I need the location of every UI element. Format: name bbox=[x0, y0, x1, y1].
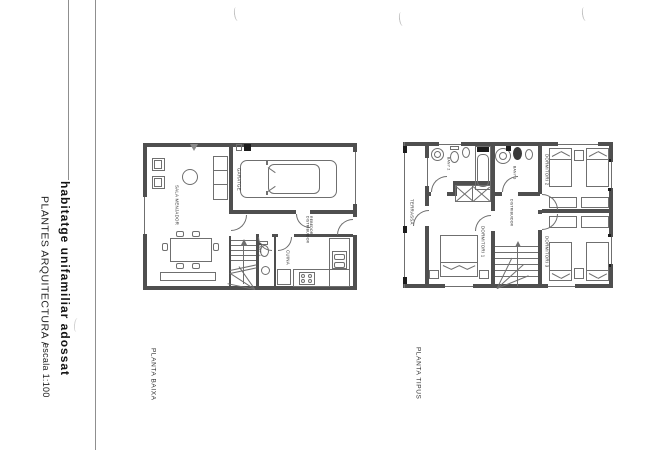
railing-post bbox=[403, 146, 407, 153]
window bbox=[144, 197, 145, 234]
bidet-icon bbox=[462, 147, 470, 158]
stair-arrow-head bbox=[241, 239, 247, 245]
meter-box-dark bbox=[244, 144, 251, 151]
scan-mark bbox=[73, 318, 80, 333]
meter-box bbox=[236, 144, 242, 151]
railing-post bbox=[403, 226, 407, 233]
wall bbox=[353, 235, 357, 290]
room-label-rebedor: REBEDOR DISTRIBUIDOR bbox=[305, 216, 312, 243]
distribuidor-line: DISTRIBUIDOR bbox=[305, 216, 308, 243]
window bbox=[439, 144, 461, 145]
railing-post bbox=[403, 277, 407, 284]
bed-pillow-line bbox=[587, 159, 608, 160]
room-label-garatge: GARATGE bbox=[236, 168, 240, 191]
terrace-railing bbox=[404, 142, 405, 288]
nightstand-icon bbox=[479, 270, 489, 279]
door-arc bbox=[278, 237, 292, 251]
wall bbox=[538, 230, 542, 288]
stair-arrow bbox=[517, 245, 518, 286]
door-arc bbox=[337, 219, 353, 235]
garage-door bbox=[355, 152, 356, 204]
chair-icon bbox=[213, 243, 219, 251]
wall bbox=[229, 210, 296, 214]
wall bbox=[353, 204, 357, 217]
plan-caption-ground: PLANTA BAIXA bbox=[149, 348, 156, 401]
room-label-dorm3: DORMITORI 3 bbox=[544, 236, 548, 267]
nightstand-icon bbox=[429, 270, 439, 279]
scan-mark bbox=[398, 12, 406, 27]
sink-icon bbox=[261, 266, 270, 275]
desk-icon bbox=[549, 197, 577, 208]
plan-caption-upper: PLANTA TIPUS bbox=[414, 347, 421, 399]
sheet-name: PLANTES ARQUITECTURA / bbox=[39, 196, 50, 345]
wall bbox=[425, 142, 429, 158]
title-rule-long bbox=[95, 0, 96, 450]
window bbox=[611, 162, 612, 188]
armchair-cushion bbox=[154, 160, 162, 169]
single-bed-icon bbox=[549, 242, 572, 281]
sink-basin bbox=[334, 262, 345, 268]
bed-pillow-line bbox=[550, 270, 571, 271]
room-label-distribuidor: DISTRIBUIDOR bbox=[509, 199, 512, 226]
project-title: habitatge unifamiliar adossat bbox=[59, 181, 71, 376]
burner bbox=[308, 274, 312, 278]
desk-icon bbox=[581, 197, 609, 208]
wall bbox=[427, 192, 431, 196]
bed-pillow-line bbox=[587, 270, 608, 271]
wall bbox=[274, 234, 276, 290]
nightstand-icon bbox=[574, 150, 584, 161]
room-label-dorm2: DORMITORI 2 bbox=[544, 154, 548, 185]
room-label-bany2: BANY 2 bbox=[446, 157, 449, 171]
sink-basin bbox=[334, 254, 345, 260]
sofa-cushion-line bbox=[214, 184, 227, 185]
toilet-tank bbox=[450, 146, 459, 150]
chair-icon bbox=[162, 243, 168, 251]
bathtub-faucet bbox=[477, 147, 489, 152]
scan-mark bbox=[233, 7, 241, 22]
wall bbox=[491, 142, 495, 211]
basin-inner bbox=[434, 151, 441, 158]
car-mirror bbox=[266, 161, 268, 165]
wall bbox=[495, 192, 502, 196]
burner bbox=[301, 279, 305, 283]
wall bbox=[310, 210, 353, 214]
sofa-icon bbox=[213, 156, 228, 200]
room-label-sala: SALA MENJADOR bbox=[174, 185, 178, 225]
chair-icon bbox=[176, 231, 184, 237]
desk-icon bbox=[549, 216, 577, 228]
fridge-icon bbox=[277, 269, 291, 285]
window-jamb bbox=[608, 234, 611, 237]
bed-pillow-line bbox=[441, 262, 477, 263]
chair-icon bbox=[192, 263, 200, 269]
window bbox=[445, 286, 473, 287]
bidet-icon bbox=[525, 149, 533, 160]
wall bbox=[491, 231, 495, 288]
armchair-cushion bbox=[154, 178, 162, 187]
wardrobe-divider bbox=[472, 186, 473, 201]
bathtub-inner bbox=[477, 154, 489, 187]
wall bbox=[609, 188, 613, 237]
wall bbox=[538, 142, 542, 194]
room-label-bany3: BANY 3 bbox=[512, 166, 515, 180]
wall bbox=[143, 143, 147, 197]
wall bbox=[473, 284, 548, 288]
window bbox=[548, 286, 575, 287]
chair-icon bbox=[176, 263, 184, 269]
scale-label: escala 1:100 bbox=[41, 343, 50, 398]
room-label-dorm1: DORMITORI 1 bbox=[480, 226, 484, 257]
drawing-sheet: habitatge unifamiliar adossat PLANTES AR… bbox=[0, 0, 650, 450]
sofa-cushion-line bbox=[214, 170, 227, 171]
toilet-icon bbox=[513, 147, 522, 160]
nightstand-icon bbox=[574, 268, 584, 279]
wall bbox=[403, 142, 439, 146]
window-jamb bbox=[608, 188, 611, 191]
door-arc bbox=[231, 215, 247, 231]
desk-icon bbox=[581, 216, 609, 228]
door-arc bbox=[431, 176, 447, 192]
wall bbox=[353, 143, 357, 152]
wall bbox=[425, 186, 429, 206]
tv-icon bbox=[190, 144, 198, 151]
burner bbox=[301, 274, 305, 278]
sideboard-icon bbox=[160, 272, 216, 281]
door-arc bbox=[413, 210, 429, 226]
wall bbox=[143, 234, 147, 290]
car-cabin bbox=[268, 164, 320, 194]
dining-table-icon bbox=[170, 238, 212, 262]
shower-inner bbox=[499, 152, 507, 160]
room-label-terrassa: TERRASSA bbox=[409, 199, 413, 225]
car-mirror bbox=[266, 191, 268, 195]
burner bbox=[308, 279, 312, 283]
title-rule-short bbox=[68, 0, 69, 180]
double-bed-icon bbox=[440, 235, 478, 277]
room-label-cuina: CUINA bbox=[285, 250, 289, 265]
single-bed-icon bbox=[586, 148, 609, 187]
window bbox=[558, 144, 598, 145]
floor-plan-upper: TERRASSA BANY 2 BANY 3 DISTRIBUIDOR DORM… bbox=[403, 142, 613, 288]
wall bbox=[229, 143, 233, 213]
wall bbox=[575, 284, 613, 288]
wall bbox=[518, 192, 540, 196]
single-bed-icon bbox=[586, 242, 609, 281]
stair-arrow bbox=[243, 244, 244, 284]
window bbox=[611, 237, 612, 264]
single-bed-icon bbox=[549, 148, 572, 187]
wall bbox=[403, 284, 445, 288]
floor-plan-ground: SALA MENJADOR GARATGE REBEDOR DISTRIBUID… bbox=[143, 143, 357, 290]
stair-arrow-head bbox=[515, 241, 521, 247]
heater-box bbox=[506, 146, 511, 151]
chair-icon bbox=[192, 231, 200, 237]
bed-pillow-line bbox=[550, 159, 571, 160]
room-label-bany1: BANY 1 bbox=[258, 243, 261, 257]
wall bbox=[609, 264, 613, 288]
window bbox=[427, 158, 428, 186]
round-table-icon bbox=[182, 169, 198, 185]
toilet-icon bbox=[450, 151, 459, 163]
scan-mark bbox=[581, 7, 589, 22]
